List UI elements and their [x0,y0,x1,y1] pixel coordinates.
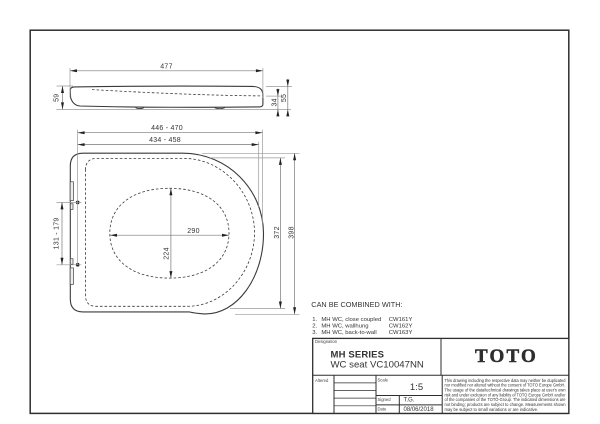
svg-text:290: 290 [187,228,199,235]
svg-text:398: 398 [288,226,295,238]
svg-text:434 - 458: 434 - 458 [149,137,181,144]
svg-text:CAN BE COMBINED WITH:: CAN BE COMBINED WITH: [311,300,402,309]
svg-text:3.: 3. [312,330,317,336]
svg-text:CW161Y: CW161Y [389,317,413,323]
svg-text:477: 477 [160,64,172,71]
svg-text:Signed: Signed [378,397,392,402]
svg-text:34: 34 [271,98,278,106]
svg-text:131 - 179: 131 - 179 [54,217,61,249]
svg-text:1:5: 1:5 [410,382,423,393]
svg-text:446 - 470: 446 - 470 [151,125,183,132]
svg-text:MH WC, close coupled: MH WC, close coupled [321,317,381,323]
svg-text:MH WC, back-to-wall: MH WC, back-to-wall [321,330,376,336]
svg-text:55: 55 [281,94,288,102]
svg-text:Scale: Scale [378,378,389,383]
svg-text:224: 224 [164,247,171,259]
svg-text:may be subject to small variat: may be subject to small variations or ar… [445,407,539,412]
svg-text:CW163Y: CW163Y [389,330,413,336]
svg-text:CW162Y: CW162Y [389,324,413,330]
svg-text:372: 372 [274,226,281,238]
svg-text:WC seat VC10047NN: WC seat VC10047NN [331,359,424,370]
svg-text:Date: Date [378,407,388,412]
svg-text:59: 59 [54,94,61,102]
svg-text:2.: 2. [312,324,317,330]
svg-text:Altered: Altered [315,378,329,383]
svg-text:TOTO: TOTO [475,346,538,367]
svg-text:1.: 1. [312,317,317,323]
svg-text:MH WC, wallhung: MH WC, wallhung [321,324,368,330]
svg-text:08/06/2018: 08/06/2018 [404,407,435,413]
svg-text:T.G.: T.G. [404,398,415,404]
svg-text:Designation: Designation [315,339,338,344]
